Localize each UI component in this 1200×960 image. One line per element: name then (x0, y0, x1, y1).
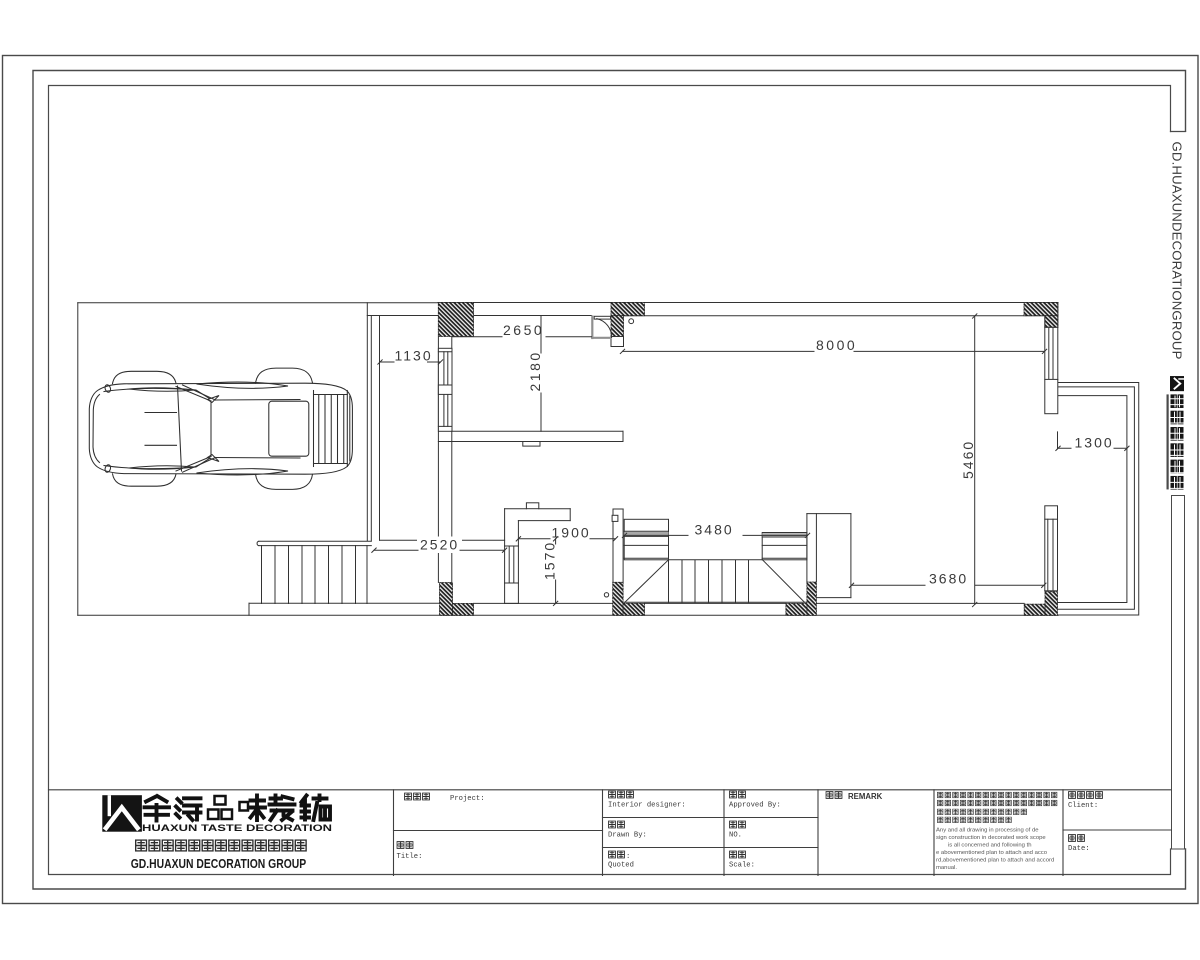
svg-text:1900: 1900 (552, 525, 591, 541)
svg-text:1130: 1130 (395, 348, 433, 364)
svg-text:Approved By:: Approved By: (729, 802, 781, 810)
svg-text:Quoted: Quoted (608, 862, 634, 870)
svg-text:Interior designer:: Interior designer: (608, 802, 686, 810)
svg-text:Client:: Client: (1068, 802, 1098, 810)
svg-text:Any and all drawing in process: Any and all drawing in processing of de (936, 828, 1039, 834)
svg-text:GD.HUAXUNDECORATIONGROUP: GD.HUAXUNDECORATIONGROUP (1170, 142, 1185, 360)
svg-text:Date:: Date: (1068, 845, 1090, 853)
svg-text:2180: 2180 (527, 350, 543, 391)
svg-text:sign construction in decorated: sign construction in decorated work scop… (936, 835, 1046, 841)
svg-text:3480: 3480 (695, 522, 734, 538)
svg-text::: : (626, 853, 630, 861)
svg-text:2650: 2650 (503, 322, 544, 338)
svg-text:rd,abovementioned plan to atta: rd,abovementioned plan to attach and acc… (936, 858, 1054, 864)
svg-text:1300: 1300 (1075, 435, 1114, 451)
svg-text:2520: 2520 (420, 537, 459, 553)
svg-text:Title:: Title: (397, 853, 423, 861)
svg-text:3680: 3680 (929, 571, 968, 587)
svg-text:1570: 1570 (542, 541, 558, 580)
svg-text:manual.: manual. (936, 865, 957, 871)
svg-text:e abovementioned plan to attac: e abovementioned plan to attach and acco (936, 850, 1048, 856)
svg-text:5460: 5460 (960, 440, 976, 479)
svg-text:8000: 8000 (816, 337, 857, 353)
svg-text:NO.: NO. (729, 832, 742, 840)
svg-text:is all concerned and following: is all concerned and following th (948, 843, 1032, 849)
svg-text:HUAXUN TASTE DECORATION: HUAXUN TASTE DECORATION (142, 823, 333, 833)
svg-text:Drawn By:: Drawn By: (608, 832, 647, 840)
svg-text:GD.HUAXUN DECORATION GROUP: GD.HUAXUN DECORATION GROUP (131, 857, 307, 871)
svg-text:Project:: Project: (450, 795, 485, 803)
svg-text:REMARK: REMARK (848, 792, 883, 801)
svg-text:Scale:: Scale: (729, 862, 755, 870)
